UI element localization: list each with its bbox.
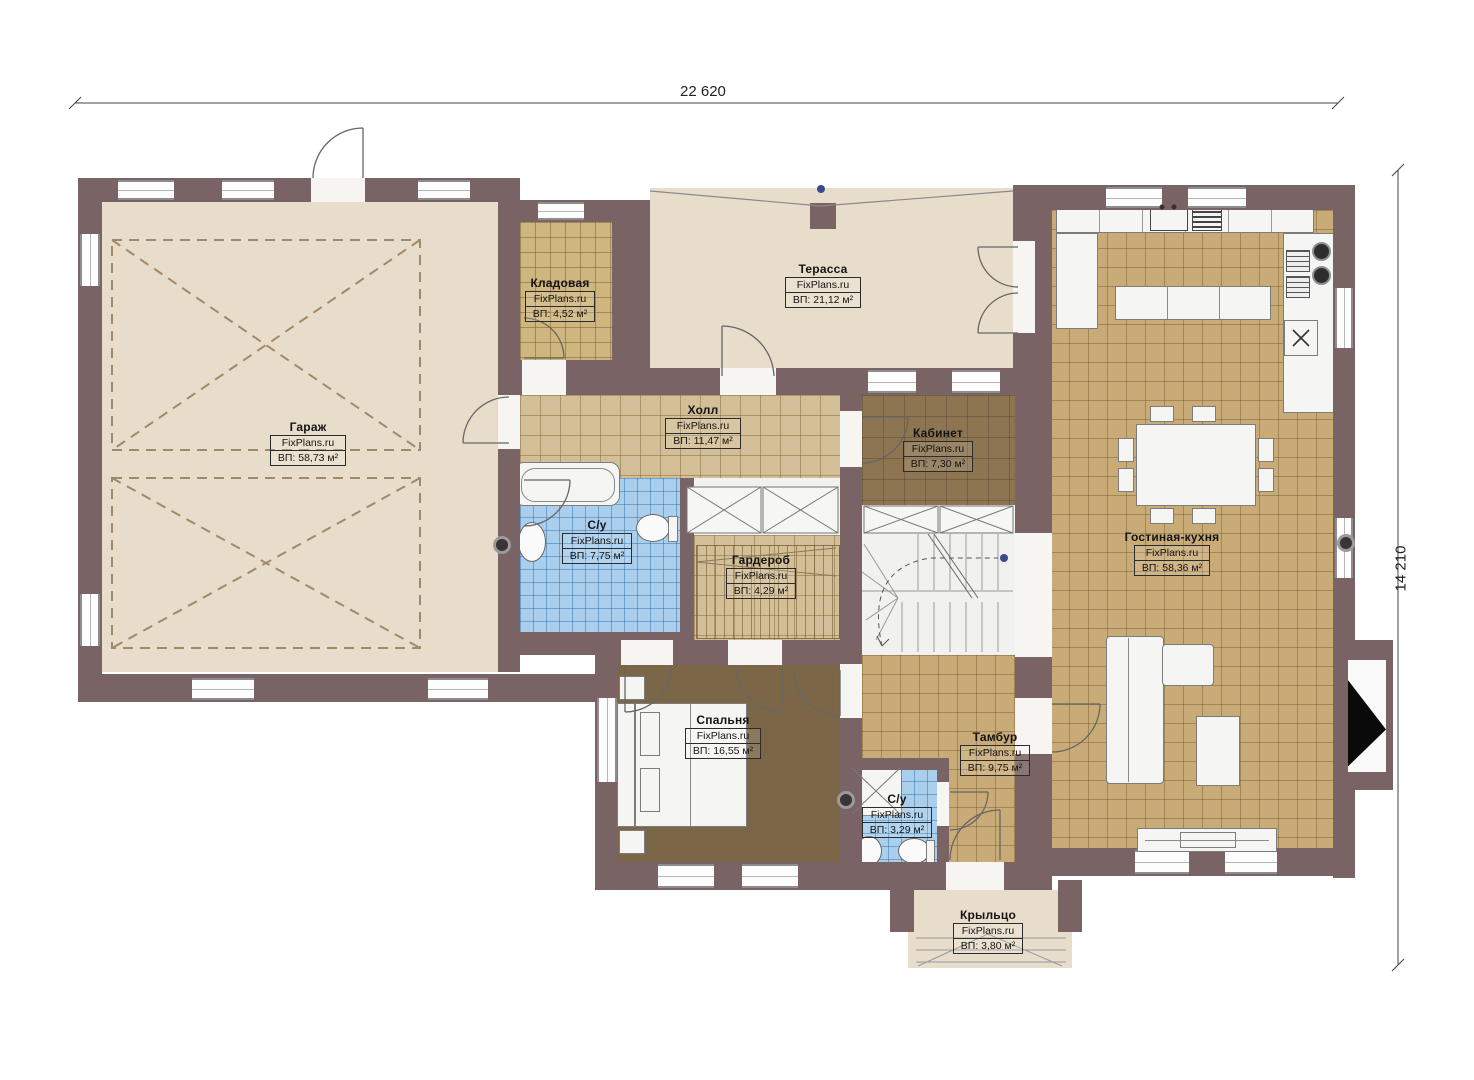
brand-watermark: FixPlans.ru [904, 442, 972, 457]
floor-plan: 22 620 14 210 Гараж FixPlans.ru ВП: 58,7… [0, 0, 1474, 1080]
room-area: ВП: 11,47 м² [666, 434, 740, 448]
faucet-dots [1160, 205, 1177, 210]
brand-watermark: FixPlans.ru [1135, 546, 1209, 561]
room-info-box: FixPlans.ru ВП: 11,47 м² [665, 418, 741, 449]
room-name: Тамбур [973, 730, 1018, 744]
room-info-box: FixPlans.ru ВП: 4,52 м² [525, 291, 595, 322]
room-label-terrace: Терасса FixPlans.ru ВП: 21,12 м² [773, 262, 873, 308]
room-info-box: FixPlans.ru ВП: 7,75 м² [562, 533, 632, 564]
room-area: ВП: 7,75 м² [563, 549, 631, 563]
dimension-right-label: 14 210 [1392, 546, 1409, 592]
room-name: Спальня [696, 713, 749, 727]
brand-watermark: FixPlans.ru [863, 808, 931, 823]
room-name: Кладовая [530, 276, 589, 290]
room-label-garage: Гараж FixPlans.ru ВП: 58,73 м² [258, 420, 358, 466]
room-label-wardrobe: Гардероб FixPlans.ru ВП: 4,29 м² [711, 553, 811, 599]
room-area: ВП: 58,73 м² [271, 451, 345, 465]
brand-watermark: FixPlans.ru [954, 924, 1022, 939]
brand-watermark: FixPlans.ru [961, 746, 1029, 761]
room-area: ВП: 4,52 м² [526, 307, 594, 321]
room-info-box: FixPlans.ru ВП: 3,29 м² [862, 807, 932, 838]
room-name: Кабинет [913, 426, 963, 440]
stairs [862, 534, 1013, 652]
room-name: Гостиная-кухня [1125, 530, 1220, 544]
room-name: С/у [887, 792, 906, 806]
room-label-bathroom-1: С/у FixPlans.ru ВП: 7,75 м² [547, 518, 647, 564]
room-name: С/у [587, 518, 606, 532]
brand-watermark: FixPlans.ru [526, 292, 594, 307]
room-name: Крыльцо [960, 908, 1016, 922]
room-info-box: FixPlans.ru ВП: 16,55 м² [685, 728, 761, 759]
brand-watermark: FixPlans.ru [686, 729, 760, 744]
room-label-living-kitchen: Гостиная-кухня FixPlans.ru ВП: 58,36 м² [1107, 530, 1237, 576]
brand-watermark: FixPlans.ru [271, 436, 345, 451]
plan-line-art [0, 0, 1474, 1080]
room-label-hall: Холл FixPlans.ru ВП: 11,47 м² [653, 403, 753, 449]
brand-watermark: FixPlans.ru [786, 278, 860, 293]
room-info-box: FixPlans.ru ВП: 58,36 м² [1134, 545, 1210, 576]
room-area: ВП: 3,80 м² [954, 939, 1022, 953]
brand-watermark: FixPlans.ru [563, 534, 631, 549]
brand-watermark: FixPlans.ru [666, 419, 740, 434]
room-area: ВП: 16,55 м² [686, 744, 760, 758]
room-label-porch: Крыльцо FixPlans.ru ВП: 3,80 м² [938, 908, 1038, 954]
room-label-bathroom-2: С/у FixPlans.ru ВП: 3,29 м² [847, 792, 947, 838]
room-info-box: FixPlans.ru ВП: 58,73 м² [270, 435, 346, 466]
room-label-storage: Кладовая FixPlans.ru ВП: 4,52 м² [510, 276, 610, 322]
closet-boxes [687, 487, 1013, 533]
room-name: Гараж [290, 420, 327, 434]
room-label-office: Кабинет FixPlans.ru ВП: 7,30 м² [888, 426, 988, 472]
room-info-box: FixPlans.ru ВП: 4,29 м² [726, 568, 796, 599]
cabinet-x-icon [1293, 330, 1309, 346]
room-area: ВП: 9,75 м² [961, 761, 1029, 775]
dimension-top-label: 22 620 [680, 83, 726, 100]
room-label-bedroom: Спальня FixPlans.ru ВП: 16,55 м² [673, 713, 773, 759]
room-area: ВП: 3,29 м² [863, 823, 931, 837]
room-name: Гардероб [732, 553, 790, 567]
room-info-box: FixPlans.ru ВП: 9,75 м² [960, 745, 1030, 776]
room-info-box: FixPlans.ru ВП: 3,80 м² [953, 923, 1023, 954]
room-name: Холл [688, 403, 719, 417]
stairs-dot [1000, 554, 1008, 562]
room-area: ВП: 58,36 м² [1135, 561, 1209, 575]
room-name: Терасса [799, 262, 848, 276]
terrace-roof-line [650, 191, 1013, 206]
room-info-box: FixPlans.ru ВП: 21,12 м² [785, 277, 861, 308]
room-info-box: FixPlans.ru ВП: 7,30 м² [903, 441, 973, 472]
brand-watermark: FixPlans.ru [727, 569, 795, 584]
room-area: ВП: 4,29 м² [727, 584, 795, 598]
room-area: ВП: 21,12 м² [786, 293, 860, 307]
room-label-vestibule: Тамбур FixPlans.ru ВП: 9,75 м² [945, 730, 1045, 776]
roof-anchor-dot [817, 185, 825, 193]
room-area: ВП: 7,30 м² [904, 457, 972, 471]
